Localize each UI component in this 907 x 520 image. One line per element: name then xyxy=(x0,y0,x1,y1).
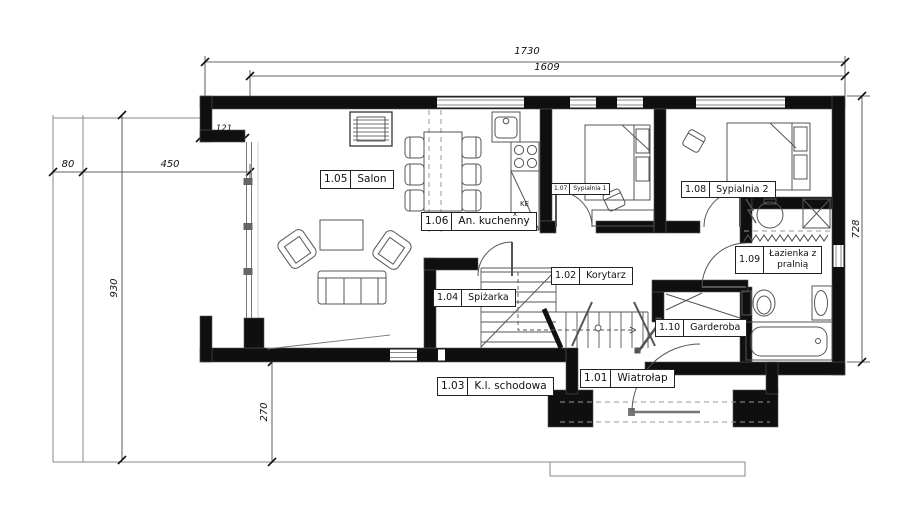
bedroom1-furniture xyxy=(585,125,654,226)
room-number: 1.07 xyxy=(552,184,570,194)
room-name: Sypialnia 1 xyxy=(570,184,609,194)
bedroom2-furniture xyxy=(682,123,810,190)
room-number: 1.01 xyxy=(581,370,611,387)
room-name: Wiatrołap xyxy=(611,370,673,387)
room-name: Spiżarka xyxy=(462,290,515,306)
radiator-wavy xyxy=(744,235,828,241)
wardrobe-lines xyxy=(666,293,740,318)
room-number: 1.03 xyxy=(438,378,468,395)
room-label-spizarka: 1.04 Spiżarka xyxy=(433,289,516,307)
kitchen-cross-mark: x xyxy=(513,210,517,218)
fireplace xyxy=(350,112,392,146)
room-number: 1.06 xyxy=(422,213,452,230)
room-label-sypialnia1: 1.07 Sypialnia 1 xyxy=(551,183,610,195)
room-number: 1.10 xyxy=(656,320,684,336)
room-label-garderoba: 1.10 Garderoba xyxy=(655,319,747,337)
kitchen-sink xyxy=(492,112,520,142)
dining-chairs xyxy=(405,137,481,211)
chair-2 xyxy=(682,129,707,154)
dim-left-depth: 930 xyxy=(109,268,121,308)
dim-corner-offset: 121 xyxy=(206,124,242,134)
room-label-aneks-kuchenny: 1.06 An. kuchenny xyxy=(421,212,537,231)
living-room-furniture xyxy=(276,220,414,304)
bathroom-fixtures xyxy=(742,199,832,360)
room-number: 1.09 xyxy=(736,247,764,273)
kitchen-stove xyxy=(511,142,539,171)
bathtub xyxy=(746,322,832,360)
room-name: Korytarz xyxy=(580,268,632,284)
floor-plan-sheet: 1.05 Salon 1.06 An. kuchenny 1.07 Sypial… xyxy=(0,0,907,520)
coffee-table xyxy=(320,220,363,250)
room-label-sypialnia2: 1.08 Sypialnia 2 xyxy=(681,181,776,198)
room-name: An. kuchenny xyxy=(452,213,535,230)
room-label-klatka-schodowa: 1.03 K.l. schodowa xyxy=(437,377,554,396)
room-label-wiatrolap: 1.01 Wiatrołap xyxy=(580,369,675,388)
dim-terrace-strip: 80 xyxy=(56,159,80,170)
armchair-right xyxy=(371,228,414,271)
room-name: Sypialnia 2 xyxy=(710,182,774,197)
room-name: Łazienka z pralnią xyxy=(764,247,821,273)
kitchen-counter-mark: KE xyxy=(520,200,529,208)
dim-glazed-width: 1609 xyxy=(517,62,577,74)
armchair-left xyxy=(276,227,319,270)
washbasin xyxy=(812,286,832,320)
room-label-lazienka: 1.09 Łazienka z pralnią xyxy=(735,246,822,274)
dim-terrace-width: 450 xyxy=(150,159,190,170)
terrace-door-swing xyxy=(267,335,390,349)
dim-total-width: 1730 xyxy=(497,46,557,58)
dining-table xyxy=(424,132,462,211)
room-name: Garderoba xyxy=(684,320,746,336)
room-label-salon: 1.05 Salon xyxy=(320,170,394,189)
room-number: 1.05 xyxy=(321,171,351,188)
room-number: 1.02 xyxy=(552,268,580,284)
dim-right-depth: 728 xyxy=(851,209,863,249)
room-label-korytarz: 1.02 Korytarz xyxy=(551,267,633,285)
room-name: K.l. schodowa xyxy=(468,378,552,395)
dining-set xyxy=(405,132,481,211)
sofa xyxy=(318,271,386,304)
bed-2 xyxy=(727,123,810,190)
room-number: 1.08 xyxy=(682,182,710,197)
dim-terrace-depth: 270 xyxy=(259,392,271,432)
room-name: Salon xyxy=(351,171,392,188)
room-number: 1.04 xyxy=(434,290,462,306)
